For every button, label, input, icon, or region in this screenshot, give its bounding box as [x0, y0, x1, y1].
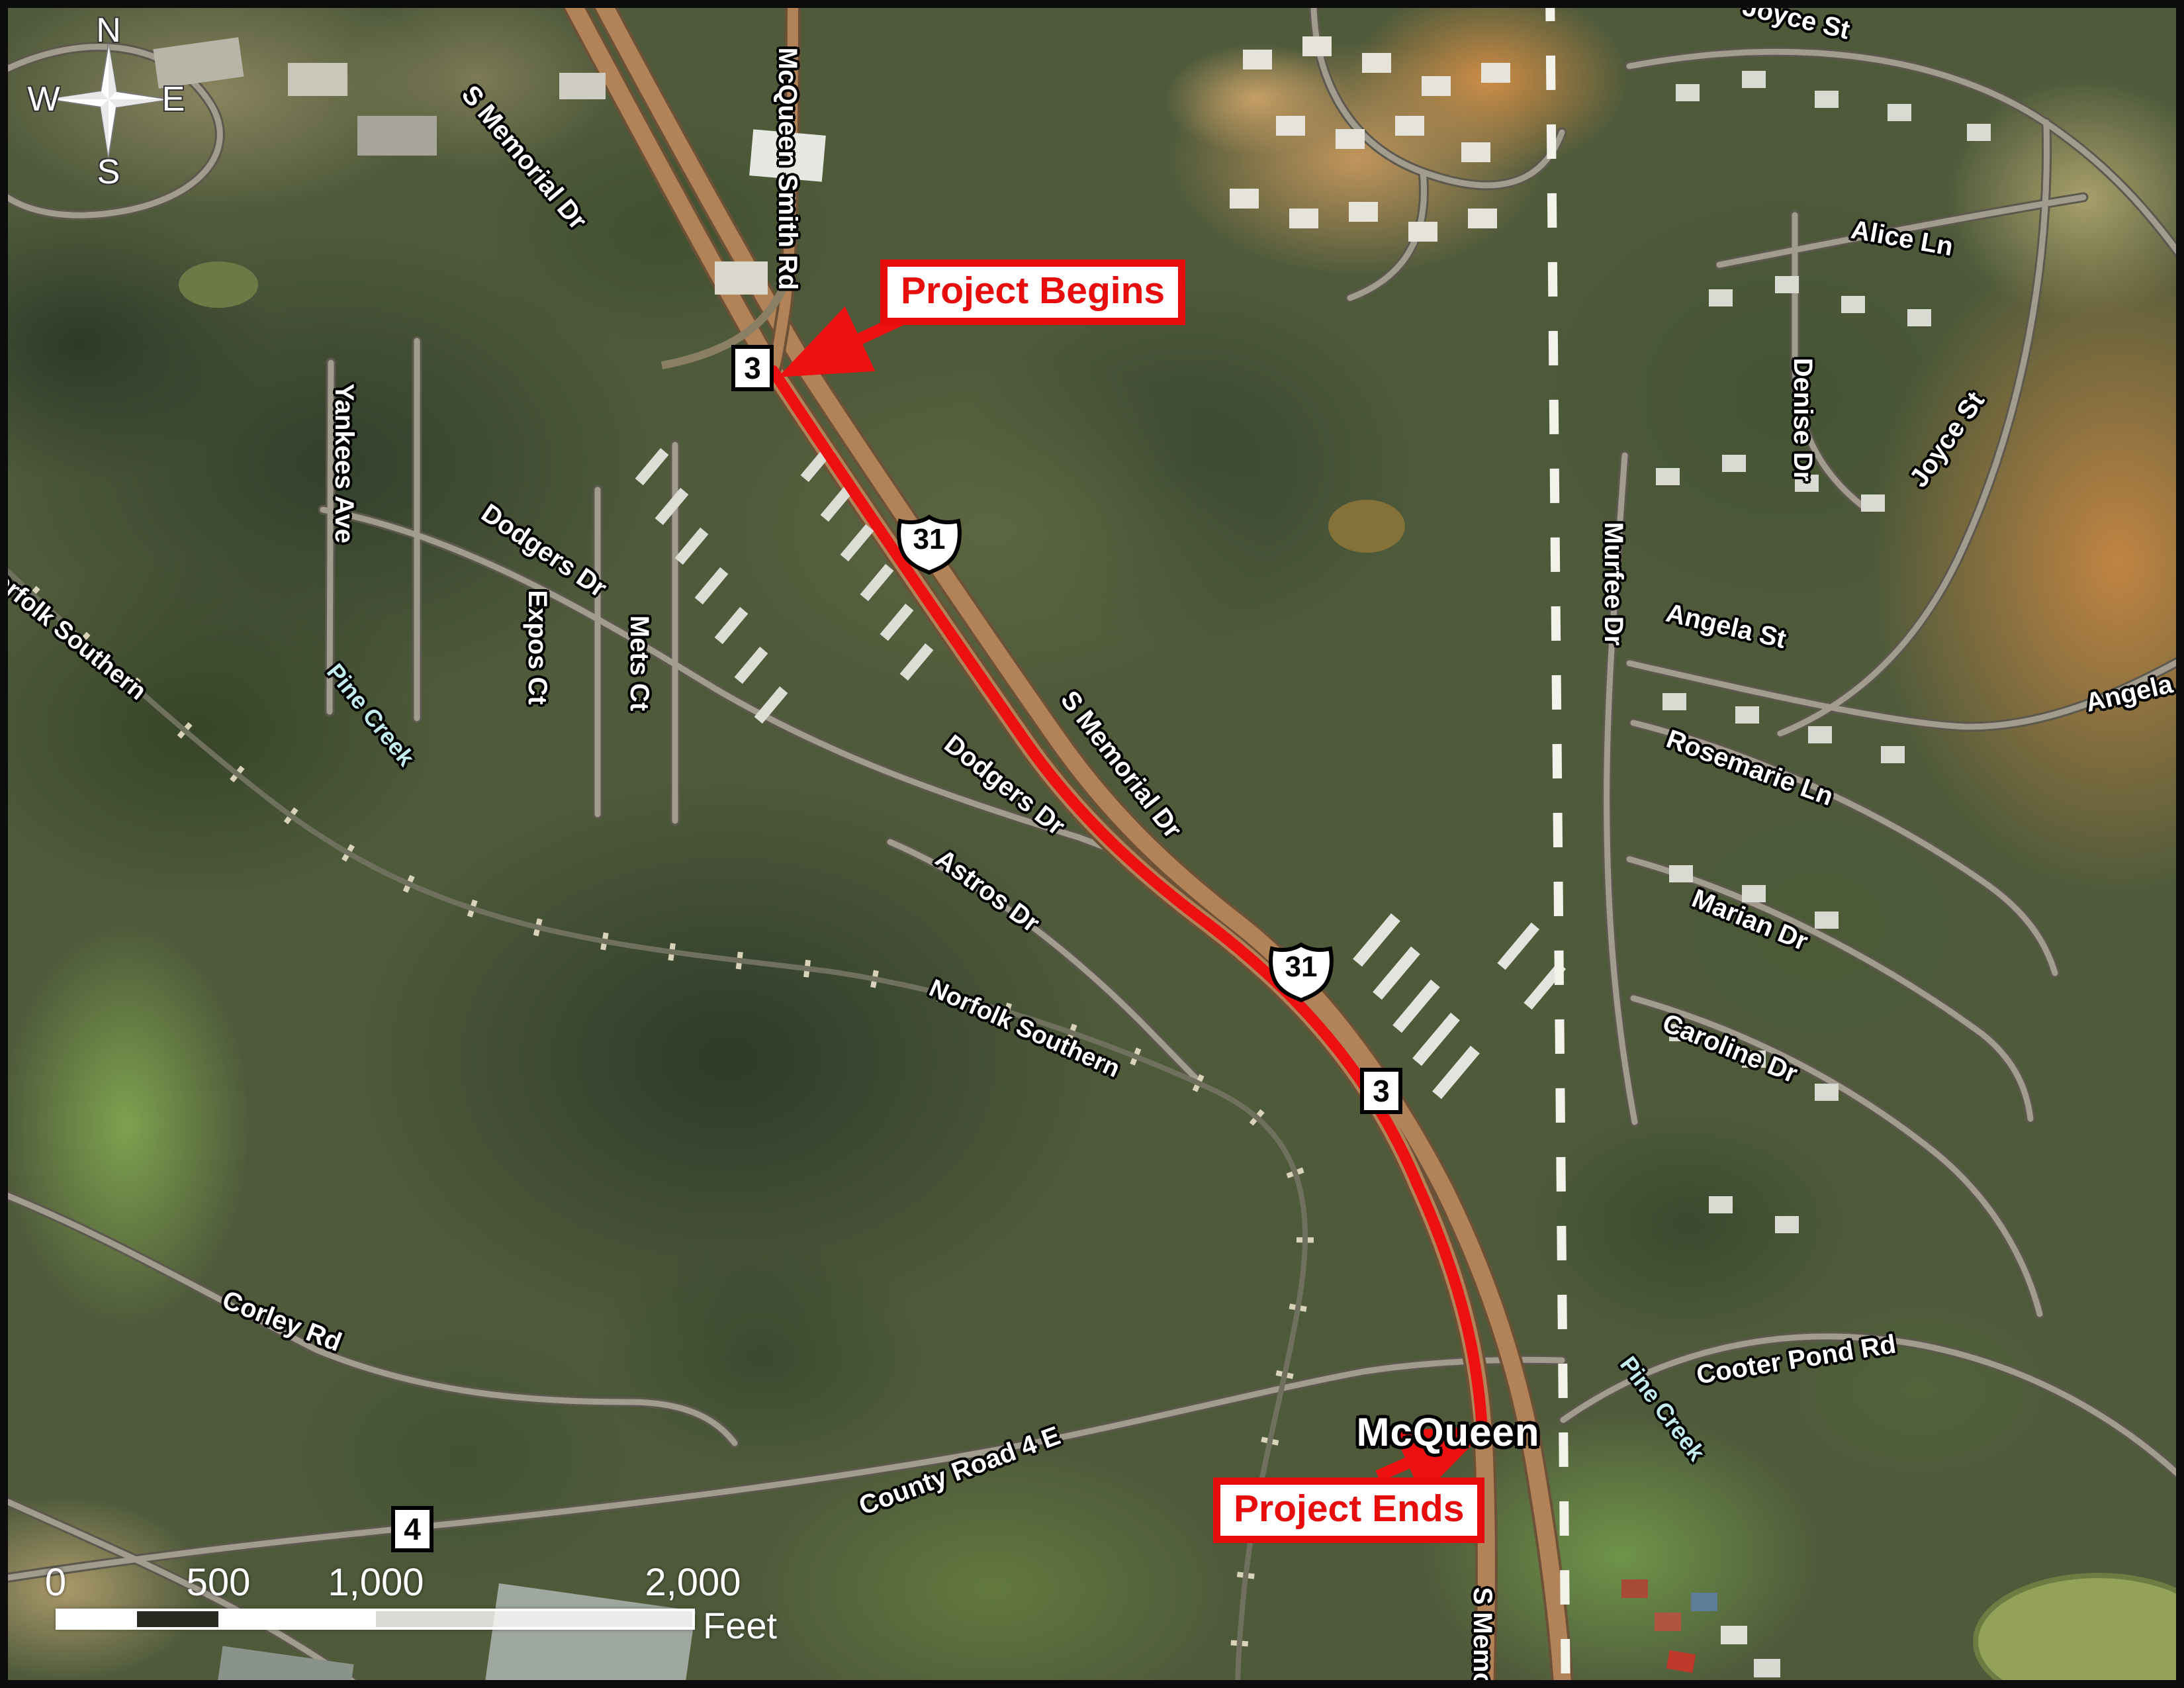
road-label-mcqueen-smith-rd: McQueen Smith Rd — [774, 48, 801, 291]
scale-tick-2000: 2,000 — [645, 1564, 741, 1602]
shield-number: 3 — [744, 350, 761, 386]
shield-number: 4 — [404, 1511, 421, 1547]
road-label-s-memorial-dr-south: S Memorial Dr — [1469, 1587, 1496, 1688]
pond — [179, 261, 258, 308]
scale-tick-500: 500 — [187, 1564, 251, 1602]
scale-tick-1000: 1,000 — [328, 1564, 424, 1602]
scale-bar-segment — [137, 1611, 218, 1627]
scale-bar-segment — [376, 1611, 692, 1627]
compass-rose: N S E W — [34, 13, 183, 188]
shield-number: 31 — [895, 523, 964, 556]
scale-bar — [56, 1609, 695, 1630]
compass-south-label: S — [97, 152, 120, 192]
compass-east-label: E — [162, 79, 185, 119]
map-vector-layer — [0, 0, 2184, 1688]
state-route-3-shield-north: 3 — [731, 345, 774, 391]
county-road-4-shield: 4 — [391, 1506, 433, 1552]
compass-west-label: W — [27, 79, 60, 119]
road-label-yankees-ave: Yankees Ave — [331, 383, 357, 543]
scale-bar-segment — [218, 1611, 376, 1627]
project-ends-callout: Project Ends — [1213, 1477, 1484, 1543]
shield-number: 3 — [1373, 1073, 1390, 1109]
scale-bar-segment — [58, 1611, 137, 1627]
scale-unit-label: Feet — [703, 1607, 777, 1644]
state-route-3-shield-south: 3 — [1360, 1068, 1402, 1114]
road-label-mets-ct: Mets Ct — [626, 616, 653, 711]
project-location-map: S Memorial Dr McQueen Smith Rd Yankees A… — [0, 0, 2184, 1688]
project-begins-callout: Project Begins — [880, 259, 1185, 325]
scale-tick-0: 0 — [45, 1564, 66, 1602]
compass-north-label: N — [96, 11, 121, 50]
pond — [1328, 500, 1405, 553]
road-label-denise-dr: Denise Dr — [1790, 358, 1816, 482]
railroad-norfolk-southern — [0, 546, 1305, 1688]
us-31-shield-north: 31 — [895, 514, 964, 575]
shield-number: 31 — [1267, 951, 1336, 984]
road-label-murfee-dr: Murfee Dr — [1600, 522, 1627, 646]
city-limit-dashed-line — [1550, 0, 1566, 1688]
place-label-mcqueen: McQueen — [1356, 1413, 1539, 1452]
road-label-expos-ct: Expos Ct — [524, 590, 551, 704]
us-31-shield-south: 31 — [1267, 941, 1336, 1002]
pond — [1976, 1575, 2184, 1688]
